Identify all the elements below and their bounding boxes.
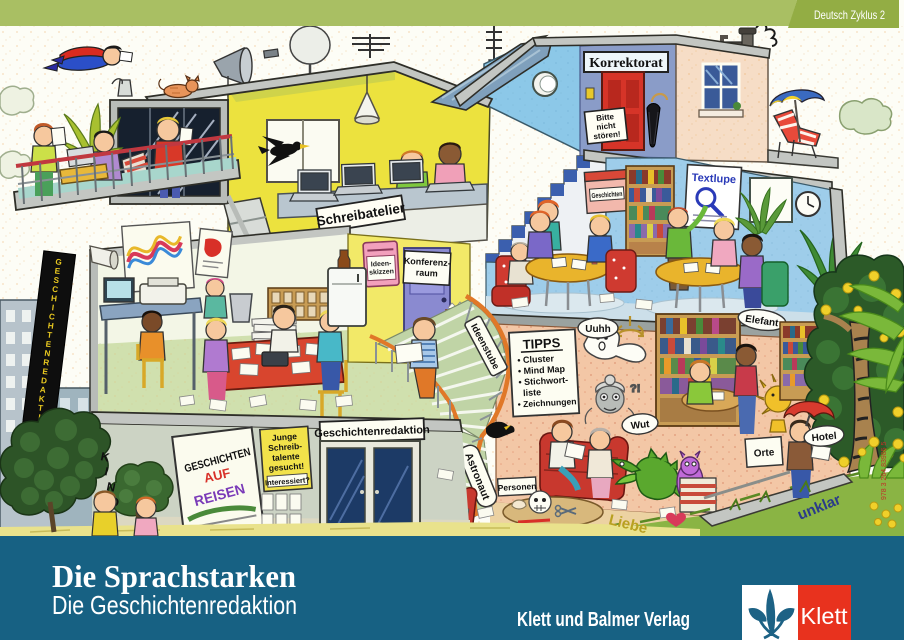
svg-text:Personen: Personen [497,481,536,493]
svg-text:N: N [44,349,51,359]
svg-text:K: K [38,394,45,404]
svg-text:H: H [51,294,58,304]
svg-text:liste: liste [523,387,542,398]
svg-text:H: H [47,321,54,331]
svg-text:Orte: Orte [753,447,775,459]
svg-text:skizzen: skizzen [369,268,394,276]
svg-text:Uuhh: Uuhh [585,324,611,335]
svg-text:• Cluster: • Cluster [517,353,555,365]
svg-text:Wut: Wut [630,419,650,432]
svg-text:978 3 264 83985 5: 978 3 264 83985 5 [881,442,888,500]
svg-text:Textlupe: Textlupe [691,172,736,186]
svg-text:Klett und Balmer Verlag: Klett und Balmer Verlag [517,609,690,631]
svg-text:Deutsch Zyklus 2: Deutsch Zyklus 2 [814,8,885,22]
svg-text:?!: ?! [630,383,640,395]
svg-text:A: A [39,385,46,395]
svg-text:raum: raum [415,267,438,278]
svg-text:Die Geschichtenredaktion: Die Geschichtenredaktion [52,590,297,620]
svg-text:TIPPS: TIPPS [522,335,561,352]
svg-text:G: G [55,257,62,267]
svg-text:R: R [43,358,50,368]
svg-text:Ideen-: Ideen- [371,260,393,268]
svg-text:C: C [52,285,59,295]
svg-text:C: C [48,312,55,322]
svg-text:D: D [40,376,47,386]
svg-text:Korrektorat: Korrektorat [589,56,663,71]
svg-text:Die Sprachstarken: Die Sprachstarken [52,558,296,594]
svg-text:Klett: Klett [801,603,849,629]
